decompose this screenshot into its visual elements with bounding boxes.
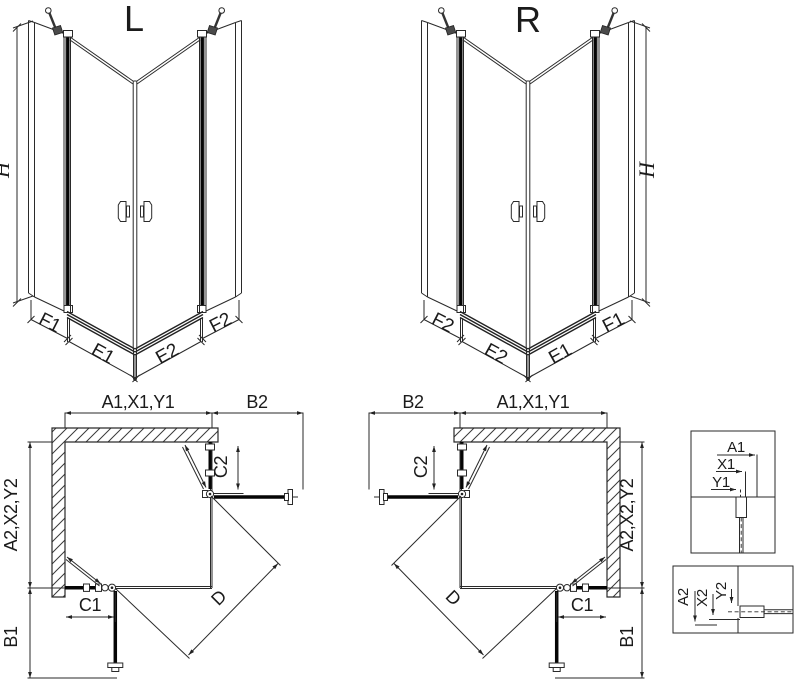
plan-label-b1-left: B1 [1,626,21,648]
dim-label-e1-left: E1 [88,340,118,369]
dim-label-e2-left: E2 [152,340,182,369]
plan-label-a2-right: A2,X2,Y2 [617,478,637,551]
dim-label-f2-right: F2 [428,309,457,337]
variant-label-left: L [124,0,144,39]
building-walls-right-plan [454,428,620,597]
left-plan-geometry [28,413,304,679]
plan-label-a2-left: A2,X2,Y2 [1,478,21,551]
plan-label-d-right: D [442,586,465,609]
variant-label-right: R [515,0,541,40]
plan-label-a1-right: A1,X1,Y1 [497,392,570,412]
plan-label-a1-left: A1,X1,Y1 [102,392,175,412]
plan-label-c1-left: C1 [79,595,102,615]
height-label-right: H [634,161,659,179]
dim-label-e2-right: E2 [481,340,511,369]
d-dimension [116,496,281,659]
height-label-left: H [0,161,14,179]
profile-detail-bottom: A2 X2 Y2 [673,566,793,633]
plan-label-b1-right: B1 [617,626,637,648]
height-dimension [13,21,33,307]
building-walls-left-plan [52,428,218,597]
left-dimension [28,442,118,678]
plan-label-c2-left: C2 [211,456,231,479]
door-pivot-bottom [102,584,116,591]
plan-label-b2-right: B2 [402,392,424,412]
detail-label-y1: Y1 [712,474,730,491]
dim-label-f1-left: F1 [35,309,64,337]
drawing-canvas: L H F1 E1 E2 F2 R H F2 E2 E1 F1 [0,0,800,688]
shower-enclosure-technical-drawing: L H F1 E1 E2 F2 R H F2 E2 E1 F1 [0,0,800,688]
plan-label-c1-right: C1 [571,595,594,615]
detail-label-x1: X1 [717,456,735,473]
profile-detail-top: A1 X1 Y1 [691,431,775,553]
detail-label-y2: Y2 [713,582,730,600]
dim-label-e1-right: E1 [545,340,575,369]
plan-label-b2-left: B2 [246,392,268,412]
support-bar [46,8,63,35]
plan-label-d-left: D [207,586,230,609]
detail-label-x2: X2 [694,589,711,607]
door-handle [118,202,129,222]
wall-profile-section [736,497,747,518]
plan-label-c2-right: C2 [411,456,431,479]
detail-label-a1: A1 [727,439,745,456]
dim-label-f2-left: F2 [206,309,235,337]
corner-edge [133,81,137,349]
right-plan-geometry [369,413,645,679]
dim-label-f1-right: F1 [599,309,628,337]
detail-label-a2: A2 [675,588,692,606]
